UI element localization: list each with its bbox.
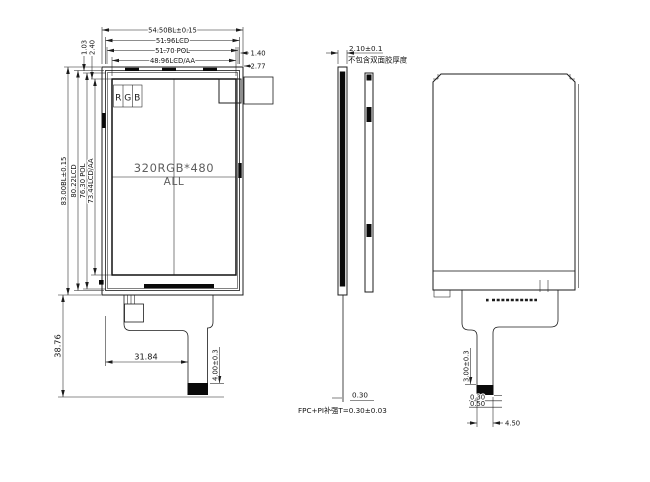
- front-view: 54.50BL±0.15 51.96LCD 51.70 POL 48.96LCD…: [53, 27, 274, 397]
- dim-stiffener-len: 3.00±0.3: [463, 350, 471, 382]
- driver-ic: [125, 304, 144, 322]
- front-top-left-offsets: [84, 56, 92, 79]
- halftone-patch: [244, 77, 273, 104]
- dim-offset-2-77: 2.77: [251, 62, 266, 70]
- tape-hatch-strip: [433, 271, 575, 290]
- dim-height-bl: 83.00BL±0.15: [60, 157, 68, 206]
- dim-width-pol: 51.70 POL: [155, 47, 190, 55]
- rgb-label-r: R: [115, 94, 121, 104]
- fpc-outline-back: [462, 280, 558, 385]
- fpc-connector-front: [188, 383, 209, 395]
- dim-width-lcd: 51.96LCD: [156, 37, 189, 45]
- dim-width-bl: 54.50BL±0.15: [148, 27, 197, 35]
- fpc-outline-front: [124, 295, 213, 383]
- dim-offset-2-40: 2.40: [89, 40, 97, 55]
- back-outline: [433, 74, 579, 290]
- drawing-svg: 54.50BL±0.15 51.96LCD 51.70 POL 48.96LCD…: [0, 0, 650, 482]
- dim-height-aa: 73.44LCD/AA: [87, 158, 95, 203]
- front-right-offsets: [241, 53, 250, 66]
- dim-fpc-width: 31.84: [134, 352, 157, 362]
- dim-offset-1-40: 1.40: [251, 49, 266, 57]
- side-fpc-line: [332, 295, 343, 402]
- rgb-label-g: G: [124, 94, 131, 104]
- dim-height-pol: 76.30 POL: [79, 163, 87, 198]
- all-label: ALL: [164, 176, 185, 188]
- resolution-label: 320RGB*480: [134, 161, 214, 175]
- side-profile-fill: [340, 72, 345, 287]
- back-left-tab: [434, 290, 450, 297]
- bonding-bar: [144, 284, 214, 288]
- dim-stiffener-t: 0.50: [470, 400, 485, 408]
- back-view: 3.00±0.3 0.30 0.50 4.50: [433, 74, 579, 428]
- dim-fpc-height: 38.76: [53, 334, 63, 357]
- dim-connector-len: 4.00±0.3: [212, 349, 220, 381]
- rgb-label-b: B: [134, 94, 140, 104]
- side-view: 2.10±0.1 不包含双面胶厚度 0.30 FPC+PI补强T=0.30±0.…: [298, 44, 408, 415]
- thickness-note: 不包含双面胶厚度: [348, 56, 408, 65]
- dim-tail-width: 4.50: [505, 420, 520, 428]
- lcd-technical-drawing: 54.50BL±0.15 51.96LCD 51.70 POL 48.96LCD…: [0, 0, 650, 482]
- dim-thickness: 2.10±0.1: [349, 44, 382, 53]
- dim-offset-1-03: 1.03: [81, 40, 89, 55]
- dim-fpc-thickness: 0.30: [352, 391, 368, 400]
- fpc-stiffener-note: FPC+PI补强T=0.30±0.03: [298, 406, 387, 415]
- dim-height-lcd: 80.22LCD: [70, 164, 78, 197]
- dim-width-aa: 48.96LCD/AA: [150, 57, 195, 65]
- alignment-mark: [99, 280, 104, 285]
- side-profile-lcd: [365, 73, 373, 292]
